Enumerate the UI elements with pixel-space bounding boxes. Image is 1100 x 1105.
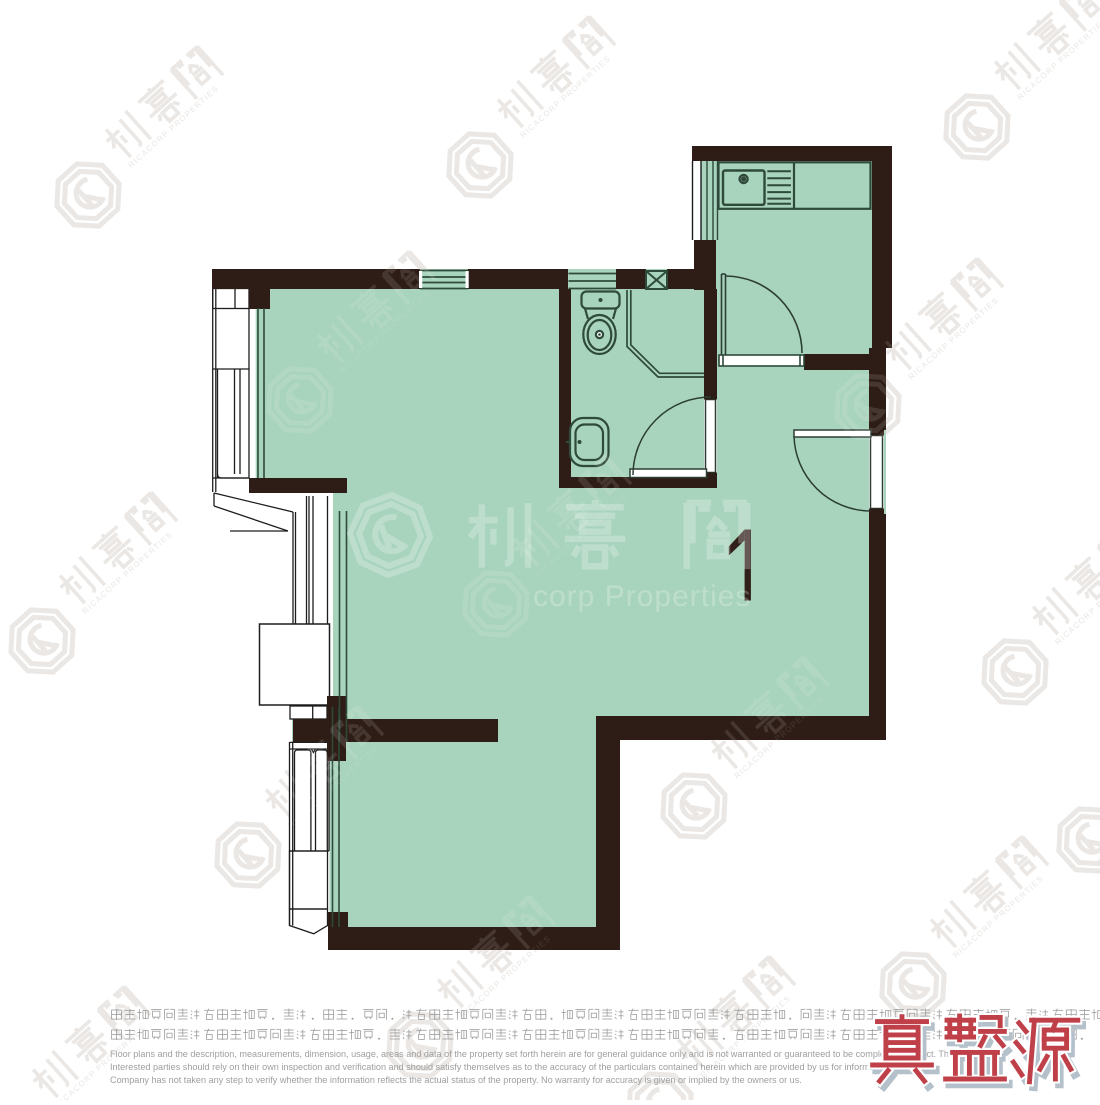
svg-text:Interested parties should rely: Interested parties should rely on their …: [110, 1062, 929, 1072]
svg-text:Floor plans and the descriptio: Floor plans and the description, measure…: [110, 1049, 954, 1059]
svg-text:Company has not taken any step: Company has not taken any step to verify…: [110, 1075, 802, 1085]
svg-text:corp Properties: corp Properties: [533, 580, 751, 613]
